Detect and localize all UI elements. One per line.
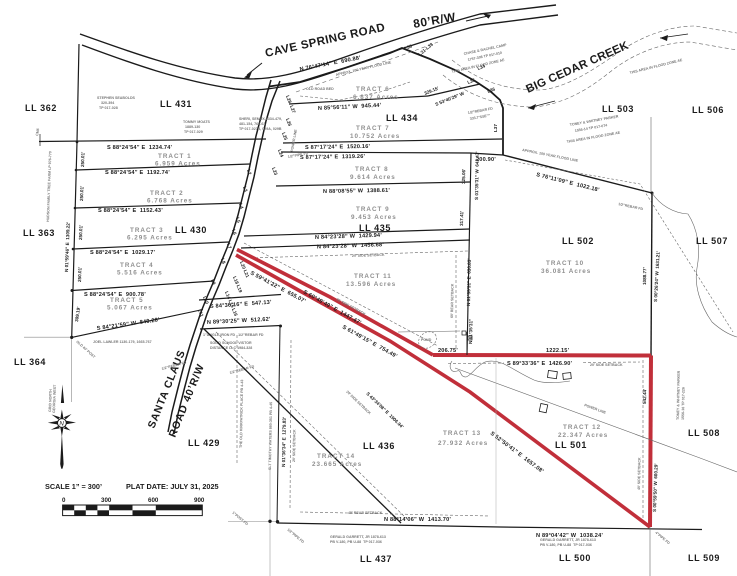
svg-text:LL 506: LL 506 — [692, 105, 724, 115]
svg-text:TRACT 1: TRACT 1 — [158, 153, 192, 160]
svg-text:PB V-180, PB U-88 TP 017-036: PB V-180, PB U-88 TP 017-036 — [330, 540, 382, 544]
svg-text:20’ SIDE SETBACK: 20’ SIDE SETBACK — [590, 363, 623, 367]
svg-text:TRACT 11: TRACT 11 — [354, 273, 392, 280]
svg-text:481-154, 760-63: 481-154, 760-63 — [239, 122, 265, 126]
svg-text:TRACT 5: TRACT 5 — [110, 297, 144, 304]
svg-text:1889-130: 1889-130 — [185, 125, 200, 129]
svg-text:TRACT 9: TRACT 9 — [356, 206, 390, 213]
svg-text:TRACT 2: TRACT 2 — [150, 190, 184, 197]
svg-text:0: 0 — [62, 497, 66, 504]
svg-text:206.75’: 206.75’ — [438, 348, 458, 354]
svg-text:S 01°35’31” W 642.47’: S 01°35’31” W 642.47’ — [474, 151, 480, 200]
svg-text:OLD ROAD BED: OLD ROAD BED — [306, 87, 334, 91]
svg-text:1556-16 TP 017-226: 1556-16 TP 017-226 — [681, 387, 686, 420]
svg-text:6.768 Acres: 6.768 Acres — [147, 198, 193, 205]
svg-text:GERALD GARRETT, JR 1878-613: GERALD GARRETT, JR 1878-613 — [540, 538, 596, 542]
svg-text:TOMMY MOATS: TOMMY MOATS — [183, 120, 211, 124]
svg-text:LL 509: LL 509 — [688, 553, 720, 563]
svg-text:S 87°17’24” E 1319.26’: S 87°17’24” E 1319.26’ — [300, 154, 366, 161]
svg-text:LL 437: LL 437 — [360, 554, 392, 564]
svg-text:317.41’: 317.41’ — [459, 211, 464, 226]
svg-text:SHERI, SEMUX 1334-479,: SHERI, SEMUX 1334-479, — [239, 117, 282, 121]
svg-text:LL 363: LL 363 — [23, 228, 55, 238]
svg-text:250.01’: 250.01’ — [77, 267, 83, 282]
svg-text:S 87°17’24” E 1520.16’: S 87°17’24” E 1520.16’ — [305, 144, 371, 151]
svg-text:45’ REAR SETBACK: 45’ REAR SETBACK — [348, 511, 383, 515]
svg-text:36.081 Acres: 36.081 Acres — [541, 268, 591, 275]
svg-text:9.453 Acres: 9.453 Acres — [351, 214, 397, 221]
svg-text:20’ SIDE SETBACK: 20’ SIDE SETBACK — [292, 429, 297, 462]
svg-text:320-394: 320-394 — [101, 101, 114, 105]
svg-text:S 88°24’54” E 1192.74’: S 88°24’54” E 1192.74’ — [105, 170, 170, 176]
svg-text:13.596 Acres: 13.596 Acres — [346, 281, 396, 288]
svg-text:TRACT 14: TRACT 14 — [317, 453, 355, 460]
svg-text:5.067 Acres: 5.067 Acres — [107, 305, 153, 312]
svg-text:TRACT 3: TRACT 3 — [130, 227, 164, 234]
svg-text:N 01°36’34” E 1279.83’: N 01°36’34” E 1279.83’ — [281, 417, 287, 467]
svg-text:N 88°14’06” W 1413.70’: N 88°14’06” W 1413.70’ — [384, 517, 451, 523]
svg-text:23.665 Acres: 23.665 Acres — [312, 461, 362, 468]
svg-text:600: 600 — [148, 497, 159, 504]
svg-text:LL 502: LL 502 — [562, 236, 594, 246]
svg-text:S 88°24’54” E 1029.17’: S 88°24’54” E 1029.17’ — [90, 250, 156, 256]
svg-text:250.01’: 250.01’ — [79, 186, 85, 201]
svg-text:5.516 Acres: 5.516 Acres — [117, 270, 163, 277]
svg-text:LL 362: LL 362 — [25, 103, 57, 113]
svg-text:9.614 Acres: 9.614 Acres — [350, 174, 396, 181]
svg-text:1088.77’: 1088.77’ — [642, 267, 647, 285]
svg-text:GERALD GARRETT, JR 1878-613: GERALD GARRETT, JR 1878-613 — [330, 535, 386, 539]
svg-text:900: 900 — [194, 497, 205, 504]
svg-text:TP 017-028: TP 017-028 — [99, 106, 118, 110]
svg-text:LL 364: LL 364 — [14, 357, 46, 367]
svg-text:1222.15’: 1222.15’ — [546, 348, 570, 354]
svg-text:TP 017-027B, 029A, 029B: TP 017-027B, 029A, 029B — [239, 127, 282, 131]
svg-text:27.932 Acres: 27.932 Acres — [438, 440, 488, 447]
svg-text:S 88°24’54” E 1234.74’: S 88°24’54” E 1234.74’ — [107, 145, 173, 151]
svg-text:TRACT 8: TRACT 8 — [355, 166, 389, 173]
svg-text:PB V-180, PB U-88 TP 017-036: PB V-180, PB U-88 TP 017-036 — [540, 543, 592, 547]
svg-text:S 89°33’36” E 1426.90’: S 89°33’36” E 1426.90’ — [507, 361, 573, 367]
svg-text:LL 507: LL 507 — [696, 236, 728, 246]
svg-text:PLAT DATE: JULY 31, 2025: PLAT DATE: JULY 31, 2025 — [126, 482, 219, 491]
svg-text:6.837 Acres: 6.837 Acres — [353, 94, 399, 101]
svg-text:TP 017-029: TP 017-029 — [184, 130, 203, 134]
svg-text:LL 501: LL 501 — [555, 440, 587, 450]
svg-text:325.06’: 325.06’ — [461, 169, 466, 184]
svg-text:N 88°08’55” W 1388.61’: N 88°08’55” W 1388.61’ — [323, 188, 391, 195]
svg-text:STEPHEN SEABOLDS: STEPHEN SEABOLDS — [97, 96, 136, 100]
svg-text:22.347 Acres: 22.347 Acres — [558, 432, 608, 439]
svg-text:LL 508: LL 508 — [688, 428, 720, 438]
svg-text:S 88°24’54” E 1152.43’: S 88°24’54” E 1152.43’ — [98, 208, 163, 214]
svg-text:LL 436: LL 436 — [363, 441, 395, 451]
svg-text:LL 500: LL 500 — [559, 553, 591, 563]
svg-text:N 61°35’31”: N 61°35’31” — [468, 319, 473, 344]
svg-text:TRACT 4: TRACT 4 — [120, 262, 154, 269]
svg-text:LL 431: LL 431 — [160, 99, 192, 109]
svg-text:TRACT 7: TRACT 7 — [356, 125, 390, 132]
svg-text:250.01’: 250.01’ — [78, 225, 84, 240]
svg-text:TRACT 13: TRACT 13 — [443, 430, 481, 437]
svg-text:L37: L37 — [493, 124, 498, 132]
svg-text:10.752 Acres: 10.752 Acres — [350, 133, 400, 140]
svg-text:300: 300 — [101, 497, 112, 504]
svg-text:40’ SIDE SETBACK: 40’ SIDE SETBACK — [637, 457, 642, 490]
svg-text:250.01’: 250.01’ — [80, 152, 86, 167]
svg-text:LL 434: LL 434 — [386, 113, 418, 123]
svg-text:N 01°35’31” E 630.83’: N 01°35’31” E 630.83’ — [466, 258, 472, 306]
svg-text:TRACT 6: TRACT 6 — [356, 86, 390, 93]
svg-text:TRACT 12: TRACT 12 — [563, 424, 601, 431]
svg-text:60’ REAR SETBACK: 60’ REAR SETBACK — [450, 283, 455, 318]
svg-text:6.959 Acres: 6.959 Acres — [155, 161, 201, 168]
svg-text:LL 430: LL 430 — [175, 225, 207, 235]
svg-text:6.295 Acres: 6.295 Acres — [127, 235, 173, 242]
svg-text:LL 503: LL 503 — [602, 104, 634, 114]
svg-text:N: N — [59, 421, 64, 428]
svg-text:TRACT 10: TRACT 10 — [546, 260, 584, 267]
svg-text:LL 429: LL 429 — [188, 438, 220, 448]
svg-text:SCALE 1” = 300’: SCALE 1” = 300’ — [45, 482, 102, 491]
svg-text:JOEL LAWLER 1130-179, 1665-767: JOEL LAWLER 1130-179, 1665-767 — [93, 340, 152, 344]
